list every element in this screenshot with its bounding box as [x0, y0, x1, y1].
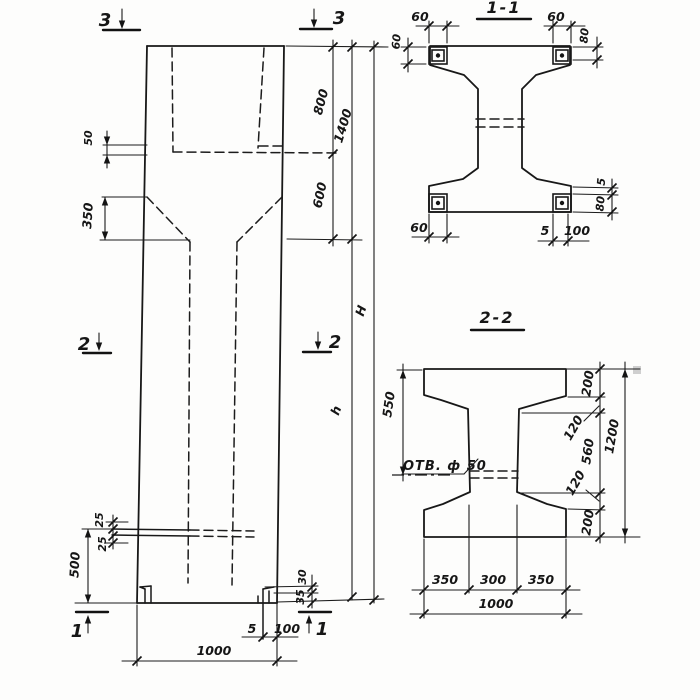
section-1-1-view: 1-1 — [389, 0, 618, 246]
dim-80-right: 80 — [593, 195, 607, 212]
dim-350-left: 350 — [432, 572, 458, 587]
dim-800: 800 — [310, 87, 331, 116]
blueprint-page: 3 3 2 2 1 1 50 350 800 — [0, 0, 700, 700]
dim-1000-base: 1000 — [197, 643, 232, 658]
dim-35: 35 — [294, 589, 307, 605]
section-marker-3-left: 3 — [99, 10, 112, 31]
dim-1000-section: 1000 — [479, 596, 514, 611]
dim-550: 550 — [379, 390, 398, 418]
section-2-2-title: 2-2 — [480, 308, 515, 327]
dim-60-bottom-left: 60 — [410, 220, 428, 235]
dim-600: 600 — [310, 180, 330, 209]
dim-1400: 1400 — [330, 107, 355, 145]
section-1-1-outline — [429, 46, 571, 212]
dim-100-base: 100 — [274, 621, 300, 636]
column-outline — [137, 46, 284, 603]
dim-300: 300 — [480, 572, 506, 587]
dim-100-bottom: 100 — [564, 223, 590, 238]
scan-artifact — [633, 366, 641, 374]
column-hidden-lines — [147, 48, 338, 585]
dim-H: H — [352, 303, 370, 318]
dim-80-right-vertical: 80 — [577, 27, 591, 44]
dim-500: 500 — [66, 551, 82, 578]
dimension-labels-section-1-1: 60 60 60 80 60 5 100 5 80 — [389, 9, 608, 238]
hole-detail: ОТВ. ф 50 — [392, 459, 518, 478]
technical-drawing: 3 3 2 2 1 1 50 350 800 — [0, 0, 700, 700]
dim-200-top: 200 — [578, 369, 597, 397]
dim-60-left-vertical: 60 — [389, 33, 403, 50]
dimension-labels-elevation: 50 350 800 1400 600 H h 25 25 500 30 35 … — [66, 87, 369, 658]
dim-200-bottom: 200 — [578, 508, 597, 536]
section-marker-1-right: 1 — [316, 619, 329, 640]
dim-60-top-left: 60 — [411, 9, 429, 24]
dim-5-right: 5 — [595, 177, 609, 186]
dim-350: 350 — [79, 202, 96, 229]
section-marker-3-right: 3 — [333, 8, 346, 29]
section-marker-1-left: 1 — [71, 621, 84, 642]
dim-60-top-right: 60 — [547, 9, 565, 24]
hole-label: ОТВ. ф 50 — [403, 459, 487, 474]
dim-50: 50 — [82, 130, 95, 146]
dim-1200: 1200 — [601, 417, 622, 454]
section-2-2-view: 2-2 ОТВ. ф 50 — [379, 308, 641, 619]
dim-350-right: 350 — [528, 572, 554, 587]
dim-30: 30 — [296, 569, 309, 585]
section-1-1-title: 1-1 — [487, 0, 522, 17]
dim-25-upper: 25 — [93, 512, 106, 528]
section-marker-2-left: 2 — [78, 334, 91, 355]
dim-h: h — [327, 404, 344, 418]
elevation-view: 3 3 2 2 1 1 50 350 800 — [66, 8, 388, 666]
section-markers: 3 3 2 2 1 1 — [71, 8, 346, 642]
section-2-2-outline — [424, 369, 566, 537]
dim-5-bottom: 5 — [541, 223, 550, 238]
dim-560: 560 — [578, 437, 597, 465]
section-marker-2-right: 2 — [329, 332, 342, 353]
dim-25-lower: 25 — [96, 536, 109, 552]
dim-5-base: 5 — [248, 621, 257, 636]
